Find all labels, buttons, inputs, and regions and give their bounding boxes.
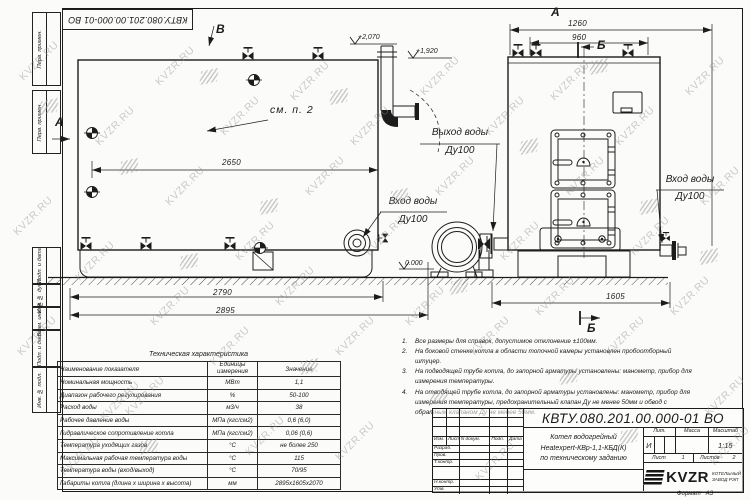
table-col-header: Единицы измерения	[208, 362, 258, 377]
note-text: На боковой стенке котла в области топочн…	[415, 347, 693, 367]
table-cell: 115	[258, 452, 341, 465]
title-block: Изм. Лист N докум. Подп. Дата Разраб. Пр…	[432, 408, 744, 493]
margin-block-label: Перв. примен.	[37, 103, 43, 142]
dim-1605-label: 1605	[606, 292, 625, 301]
table-row: Температура воды (вход/выход) °С 70/95	[58, 465, 341, 478]
table-col-header: Наименование показателя	[58, 362, 208, 377]
fan-drawing	[431, 222, 492, 277]
note-number: 3.	[402, 367, 415, 387]
lit-value: И	[644, 437, 655, 453]
notes-list: 1. Все размеры для справок, допустимое о…	[402, 337, 693, 418]
row-prov: Пров.	[433, 453, 460, 459]
sheet-value: 1	[682, 455, 685, 461]
table-cell: 0,06 (0,6)	[258, 427, 341, 440]
table-row: Диапазон рабочего регулирования % 50-100	[58, 389, 341, 402]
table-cell: 38	[258, 402, 341, 415]
side-view-drawing	[78, 46, 440, 277]
margin-block-label: Инв. № подл.	[37, 372, 43, 408]
elevation-zero-label: 0.000	[405, 260, 423, 267]
table-cell: °С	[208, 452, 258, 465]
table-row: Рабочее давление воды МПа (кгс/см2) 0,6 …	[58, 414, 341, 427]
table-cell: °С	[208, 465, 258, 478]
scale-value: 1:15	[709, 437, 742, 453]
table-cell: °С	[208, 439, 258, 452]
title-block-lit-section: Лит. Масса Масштаб И 1:15	[644, 428, 742, 454]
note-item: 2. На боковой стенке котла в области топ…	[402, 347, 693, 367]
product-name-line2: Heatexpert-КВр-1,1-КБД(К)	[524, 444, 643, 455]
table-cell: 2895х1605х2070	[258, 477, 341, 490]
title-block-sheet-row: Лист 1 Листов 2	[644, 454, 742, 463]
row-nkontr: Н.контр.	[433, 480, 460, 486]
company-name: КОТЕЛЬНЫЙ ЗАВОД РЭП	[712, 471, 741, 482]
elevation-1920-label: +1,920	[416, 48, 438, 55]
view-marker-v: В	[216, 22, 225, 36]
table-cell: Температура уходящих газов	[58, 439, 208, 452]
company-name-line2: ЗАВОД РЭП	[712, 477, 741, 483]
table-row: Гидравлическое сопротивление котла МПа (…	[58, 427, 341, 440]
tech-table-title: Техническая характеристика	[57, 351, 340, 358]
dim-2895-label: 2895	[216, 306, 235, 315]
water-inlet-right-label: Вход воды	[654, 174, 726, 185]
table-cell: Габариты котла (длина х ширина х высота)	[58, 477, 208, 490]
row-utv: Утв.	[433, 487, 460, 494]
margin-block-vzam-inv: Взам. инв. №	[32, 307, 61, 330]
dim-2650-label: 2650	[222, 158, 241, 167]
note-text: На подводящей трубе котла, до запорной а…	[415, 367, 693, 387]
scale-label: Масштаб	[709, 428, 742, 436]
water-inlet-center-label: Вход воды	[378, 196, 448, 207]
table-row: Расход воды м3/ч 38	[58, 402, 341, 415]
table-row: Номинальная мощность МВт 1,1	[58, 377, 341, 390]
title-block-revision-grid: Изм. Лист N докум. Подп. Дата Разраб. Пр…	[433, 409, 524, 491]
table-cell: 0,6 (6,0)	[258, 414, 341, 427]
title-block-product-name: Котел водогрейный Heatexpert-КВр-1,1-КБД…	[524, 428, 644, 470]
dim-2790-label: 2790	[213, 288, 232, 297]
product-name-line1: Котел водогрейный	[524, 433, 643, 444]
note-text: Все размеры для справок, допустимое откл…	[415, 337, 693, 347]
water-inlet-right-dn: Ду100	[660, 191, 720, 202]
margin-block-perv-primen: Перв. примен.	[32, 12, 61, 86]
water-outlet-dn: Ду100	[430, 145, 490, 156]
col-data: Дата	[508, 437, 523, 445]
col-podp: Подп.	[490, 437, 508, 445]
format-value: А3	[706, 491, 713, 497]
sheet-label: Лист	[652, 455, 666, 461]
mass-label: Масса	[676, 428, 709, 436]
note-number: 2.	[402, 347, 415, 367]
table-col-header: Значение	[258, 362, 341, 377]
product-name-line3: по техническому заданию	[524, 454, 643, 465]
row-tkontr: Т.контр.	[433, 460, 460, 466]
table-cell: Номинальная мощность	[58, 377, 208, 390]
col-ndoc: N докум.	[460, 437, 491, 445]
section-marker-b-top: Б	[597, 38, 606, 52]
company-logo: KVZR КОТЕЛЬНЫЙ ЗАВОД РЭП	[644, 463, 742, 491]
table-cell: Температура воды (вход/выход)	[58, 465, 208, 478]
elevation-2070-label: +2,070	[358, 34, 380, 41]
corner-stamp-number: КВТУ.080.201.00.000-01 ВО	[68, 15, 188, 25]
table-cell: не более 250	[258, 439, 341, 452]
water-inlet-center-dn: Ду100	[385, 214, 441, 225]
col-list: Лист	[447, 437, 460, 445]
table-cell: МПа (кгс/см2)	[208, 414, 258, 427]
sheets-label: Листов	[700, 455, 720, 461]
table-cell: Диапазон рабочего регулирования	[58, 389, 208, 402]
table-cell: мм	[208, 477, 258, 490]
title-block-extra-cell	[524, 470, 644, 491]
table-row: Габариты котла (длина х ширина х высота)…	[58, 477, 341, 490]
table-row: Максимальная рабочая температура воды °С…	[58, 452, 341, 465]
table-row: Температура уходящих газов °С не более 2…	[58, 439, 341, 452]
kvzr-logo-icon	[644, 470, 665, 485]
drawing-sheet: Перв. примен. Перв. примен. Подп. и дата…	[0, 0, 750, 500]
table-cell: %	[208, 389, 258, 402]
table-cell: м3/ч	[208, 402, 258, 415]
corner-stamp: КВТУ.080.201.00.000-01 ВО	[62, 9, 193, 30]
sheets-value: 2	[733, 455, 736, 461]
view-marker-a-side: А	[55, 115, 64, 129]
view-marker-a-top: А	[551, 5, 560, 19]
table-cell: 70/95	[258, 465, 341, 478]
note-number: 1.	[402, 337, 415, 347]
table-cell: 50-100	[258, 389, 341, 402]
note-number: 4.	[402, 388, 415, 418]
note-item: 1. Все размеры для справок, допустимое о…	[402, 337, 693, 347]
front-view-drawing	[475, 45, 686, 277]
table-cell: 1,1	[258, 377, 341, 390]
water-outlet-label: Выход воды	[418, 127, 502, 138]
kvzr-logo-text: KVZR	[666, 469, 709, 486]
row-blank	[433, 467, 460, 479]
see-note-label: см. п. 2	[270, 104, 314, 116]
margin-block-label: Подп. и дата	[37, 330, 43, 366]
dim-1260-label: 1260	[568, 19, 587, 28]
mass-value	[676, 437, 709, 453]
lit-label: Лит.	[644, 428, 676, 436]
table-cell: Рабочее давление воды	[58, 414, 208, 427]
dim-960-label: 960	[572, 33, 586, 42]
col-izm: Изм.	[433, 437, 447, 445]
table-cell: Расход воды	[58, 402, 208, 415]
format-word: Формат	[677, 491, 701, 497]
table-cell: МВт	[208, 377, 258, 390]
format-label: Формат А3	[650, 491, 740, 497]
ground-hatch	[48, 278, 668, 286]
section-marker-b-bottom: Б	[587, 321, 596, 335]
tech-table: Техническая характеристика Наименование …	[57, 351, 340, 490]
dimension-lines	[70, 24, 712, 320]
table-cell: МПа (кгс/см2)	[208, 427, 258, 440]
note-item: 3. На подводящей трубе котла, до запорно…	[402, 367, 693, 387]
table-cell: Максимальная рабочая температура воды	[58, 452, 208, 465]
margin-block-label: Перв. примен.	[37, 30, 43, 69]
table-cell: Гидравлическое сопротивление котла	[58, 427, 208, 440]
title-block-doc-number: КВТУ.080.201.00.000-01 ВО	[524, 409, 742, 428]
row-razrab: Разраб.	[433, 446, 460, 452]
table-header-row: Наименование показателя Единицы измерени…	[58, 362, 341, 377]
